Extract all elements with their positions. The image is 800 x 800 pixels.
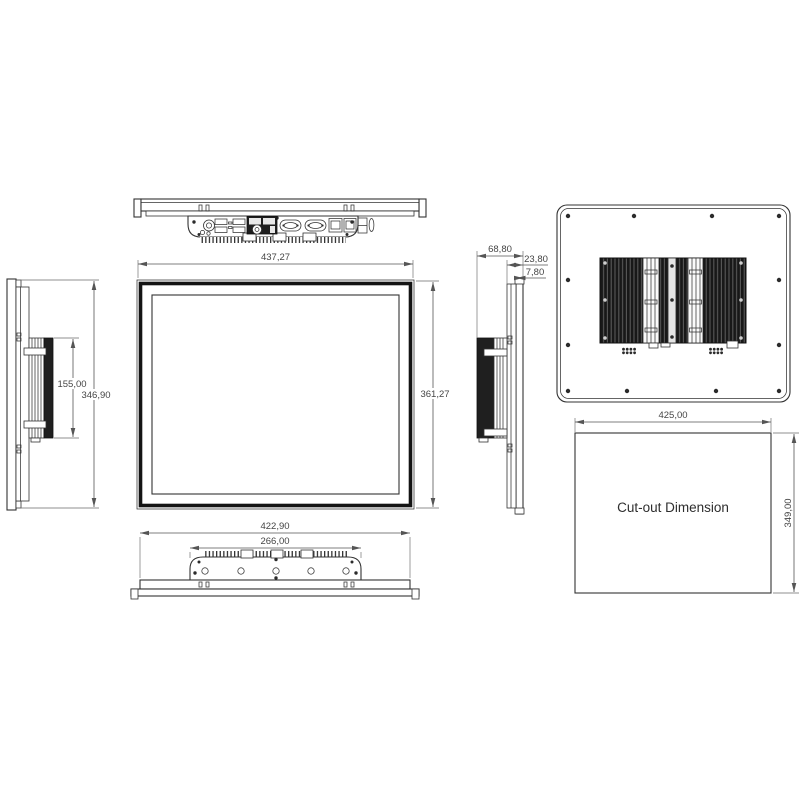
bezel-depth-dimension: 7,80 xyxy=(517,267,547,278)
cutout-view: Cut-out Dimension 425,00 349,00 xyxy=(575,410,799,593)
front-outer-edge xyxy=(137,280,414,509)
stacked-port xyxy=(358,218,367,233)
left-chassis xyxy=(16,287,29,501)
lan-audio-block xyxy=(247,217,277,235)
dim-bottom-width: 422,90 xyxy=(260,521,289,532)
power-jack xyxy=(204,220,215,231)
rear-speaker-vents xyxy=(622,348,723,354)
dim-overall-depth: 68,80 xyxy=(488,244,512,255)
right-mount-bracket-top xyxy=(484,349,507,356)
cutout-label: Cut-out Dimension xyxy=(617,500,729,515)
front-screen xyxy=(152,295,399,494)
top-chassis-edge xyxy=(146,211,414,216)
left-heatsink-height-dimension: 155,00 xyxy=(54,338,89,438)
bottom-right-bracket xyxy=(412,589,419,599)
left-mount-bracket-bottom xyxy=(24,421,46,428)
right-bezel xyxy=(516,278,523,514)
front-width-dimension: 437,27 xyxy=(138,252,413,278)
left-side-view: 155,00 346,90 xyxy=(7,279,114,510)
front-bezel xyxy=(141,284,411,506)
right-mount-bracket-bottom xyxy=(484,429,507,436)
top-left-bracket xyxy=(134,199,141,217)
rear-heatsink xyxy=(600,258,746,348)
top-right-bracket xyxy=(419,199,426,217)
rear-view xyxy=(557,205,790,402)
cutout-height-dimension: 349,00 xyxy=(773,433,799,593)
left-mount-bracket-top xyxy=(24,348,46,355)
front-height-dimension: 361,27 xyxy=(416,281,451,508)
technical-drawing-page: 437,27 361,27 xyxy=(0,0,800,800)
bottom-chassis-edge xyxy=(140,580,410,589)
dim-front-width: 437,27 xyxy=(261,252,290,263)
dim-heatsink-height: 155,00 xyxy=(57,379,86,390)
bottom-left-bracket xyxy=(131,589,138,599)
dim-bottom-heatsink-width: 266,00 xyxy=(260,536,289,547)
slot-port xyxy=(369,219,374,232)
panel-pc-drawing: 437,27 361,27 xyxy=(0,0,800,800)
dim-chassis-depth: 23,80 xyxy=(524,254,548,265)
dim-cutout-height: 349,00 xyxy=(783,498,794,527)
left-bezel xyxy=(7,279,16,510)
dim-overall-height: 346,90 xyxy=(81,390,110,401)
cutout-width-dimension: 425,00 xyxy=(575,410,771,432)
rear-heatsink-notch xyxy=(727,341,738,348)
speaker-vent-left xyxy=(622,348,636,354)
top-view xyxy=(134,199,426,243)
dim-bezel-depth: 7,80 xyxy=(526,267,545,278)
dim-cutout-width: 425,00 xyxy=(658,410,687,421)
bottom-fin-tabs xyxy=(241,550,313,558)
dim-front-height: 361,27 xyxy=(420,389,449,400)
top-bezel-edge xyxy=(141,199,419,211)
bottom-bezel-edge xyxy=(131,589,419,596)
speaker-vent-right xyxy=(709,348,723,354)
right-side-view: 68,80 23,80 7,80 xyxy=(477,244,548,514)
bottom-view: 422,90 266,00 xyxy=(131,521,419,599)
front-view: 437,27 361,27 xyxy=(137,252,451,509)
right-chassis xyxy=(507,284,516,508)
